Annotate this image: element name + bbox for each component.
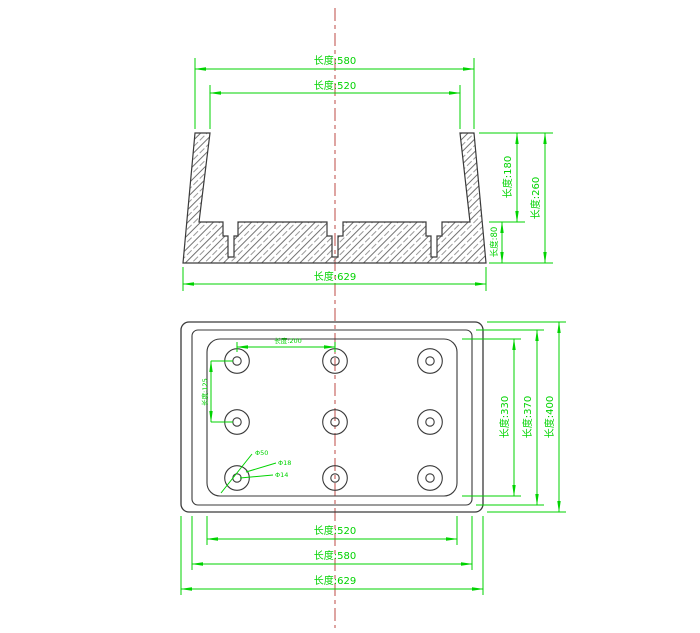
dim-label-base-height: 长度:80	[489, 227, 500, 258]
hole-callout-middle-dia: Φ18	[278, 459, 291, 467]
leader-line	[240, 475, 273, 478]
dim-label-hole-spacing-v: 长度:125	[200, 378, 209, 406]
dimensions	[181, 58, 566, 595]
bolt-hole	[418, 410, 443, 435]
dim-label-top-outer: 长度:580	[314, 54, 356, 67]
dim-label-plan-inner-w: 长度:520	[314, 524, 356, 537]
cad-drawing-canvas: 长度:580 长度:520 长度:629 长度:180 长度:80 长度:260…	[0, 0, 700, 633]
dim-label-plan-middle-w: 长度:580	[314, 549, 356, 562]
dim-label-hole-spacing-h: 长度:200	[274, 336, 302, 345]
dim-label-plan-inner-h: 长度:330	[498, 396, 511, 438]
hole-callout-outer-dia: Φ50	[255, 449, 268, 457]
dim-label-plan-outer-w: 长度:629	[314, 574, 356, 587]
leader-line	[246, 463, 276, 472]
dim-label-plan-middle-h: 长度:370	[521, 396, 534, 438]
dim-label-section-bottom: 长度:629	[314, 270, 356, 283]
cad-drawing: 长度:580 长度:520 长度:629 长度:180 长度:80 长度:260…	[0, 0, 700, 633]
dim-label-total-height: 长度:260	[529, 177, 542, 219]
dim-label-plan-outer-h: 长度:400	[543, 396, 556, 438]
dim-label-wall-height: 长度:180	[501, 156, 514, 198]
bolt-hole	[418, 466, 443, 491]
hole-callout-inner-dia: Φ14	[275, 471, 288, 479]
dimension-labels: 长度:580 长度:520 长度:629 长度:180 长度:80 长度:260…	[200, 54, 556, 587]
dim-label-top-inner: 长度:520	[314, 79, 356, 92]
bolt-hole	[225, 466, 250, 491]
bolt-hole	[418, 349, 443, 374]
plan-view	[181, 322, 483, 512]
